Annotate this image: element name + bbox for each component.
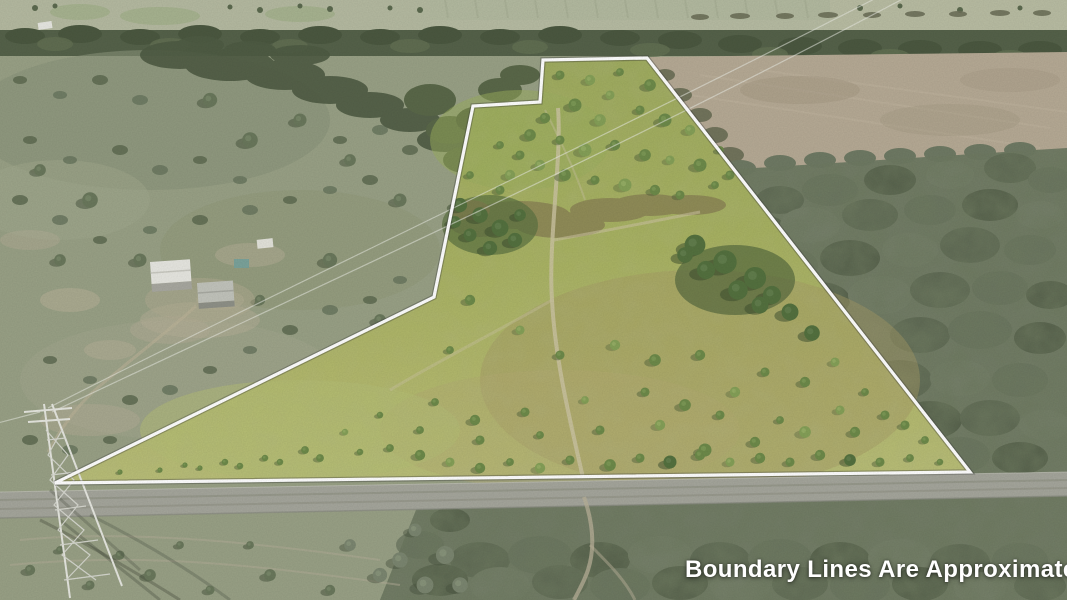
aerial-scene — [0, 0, 1067, 600]
grain-overlay — [0, 0, 1067, 600]
aerial-property-photo: Boundary Lines Are Approximate — [0, 0, 1067, 600]
boundary-disclaimer-text: Boundary Lines Are Approximate — [685, 556, 1067, 584]
